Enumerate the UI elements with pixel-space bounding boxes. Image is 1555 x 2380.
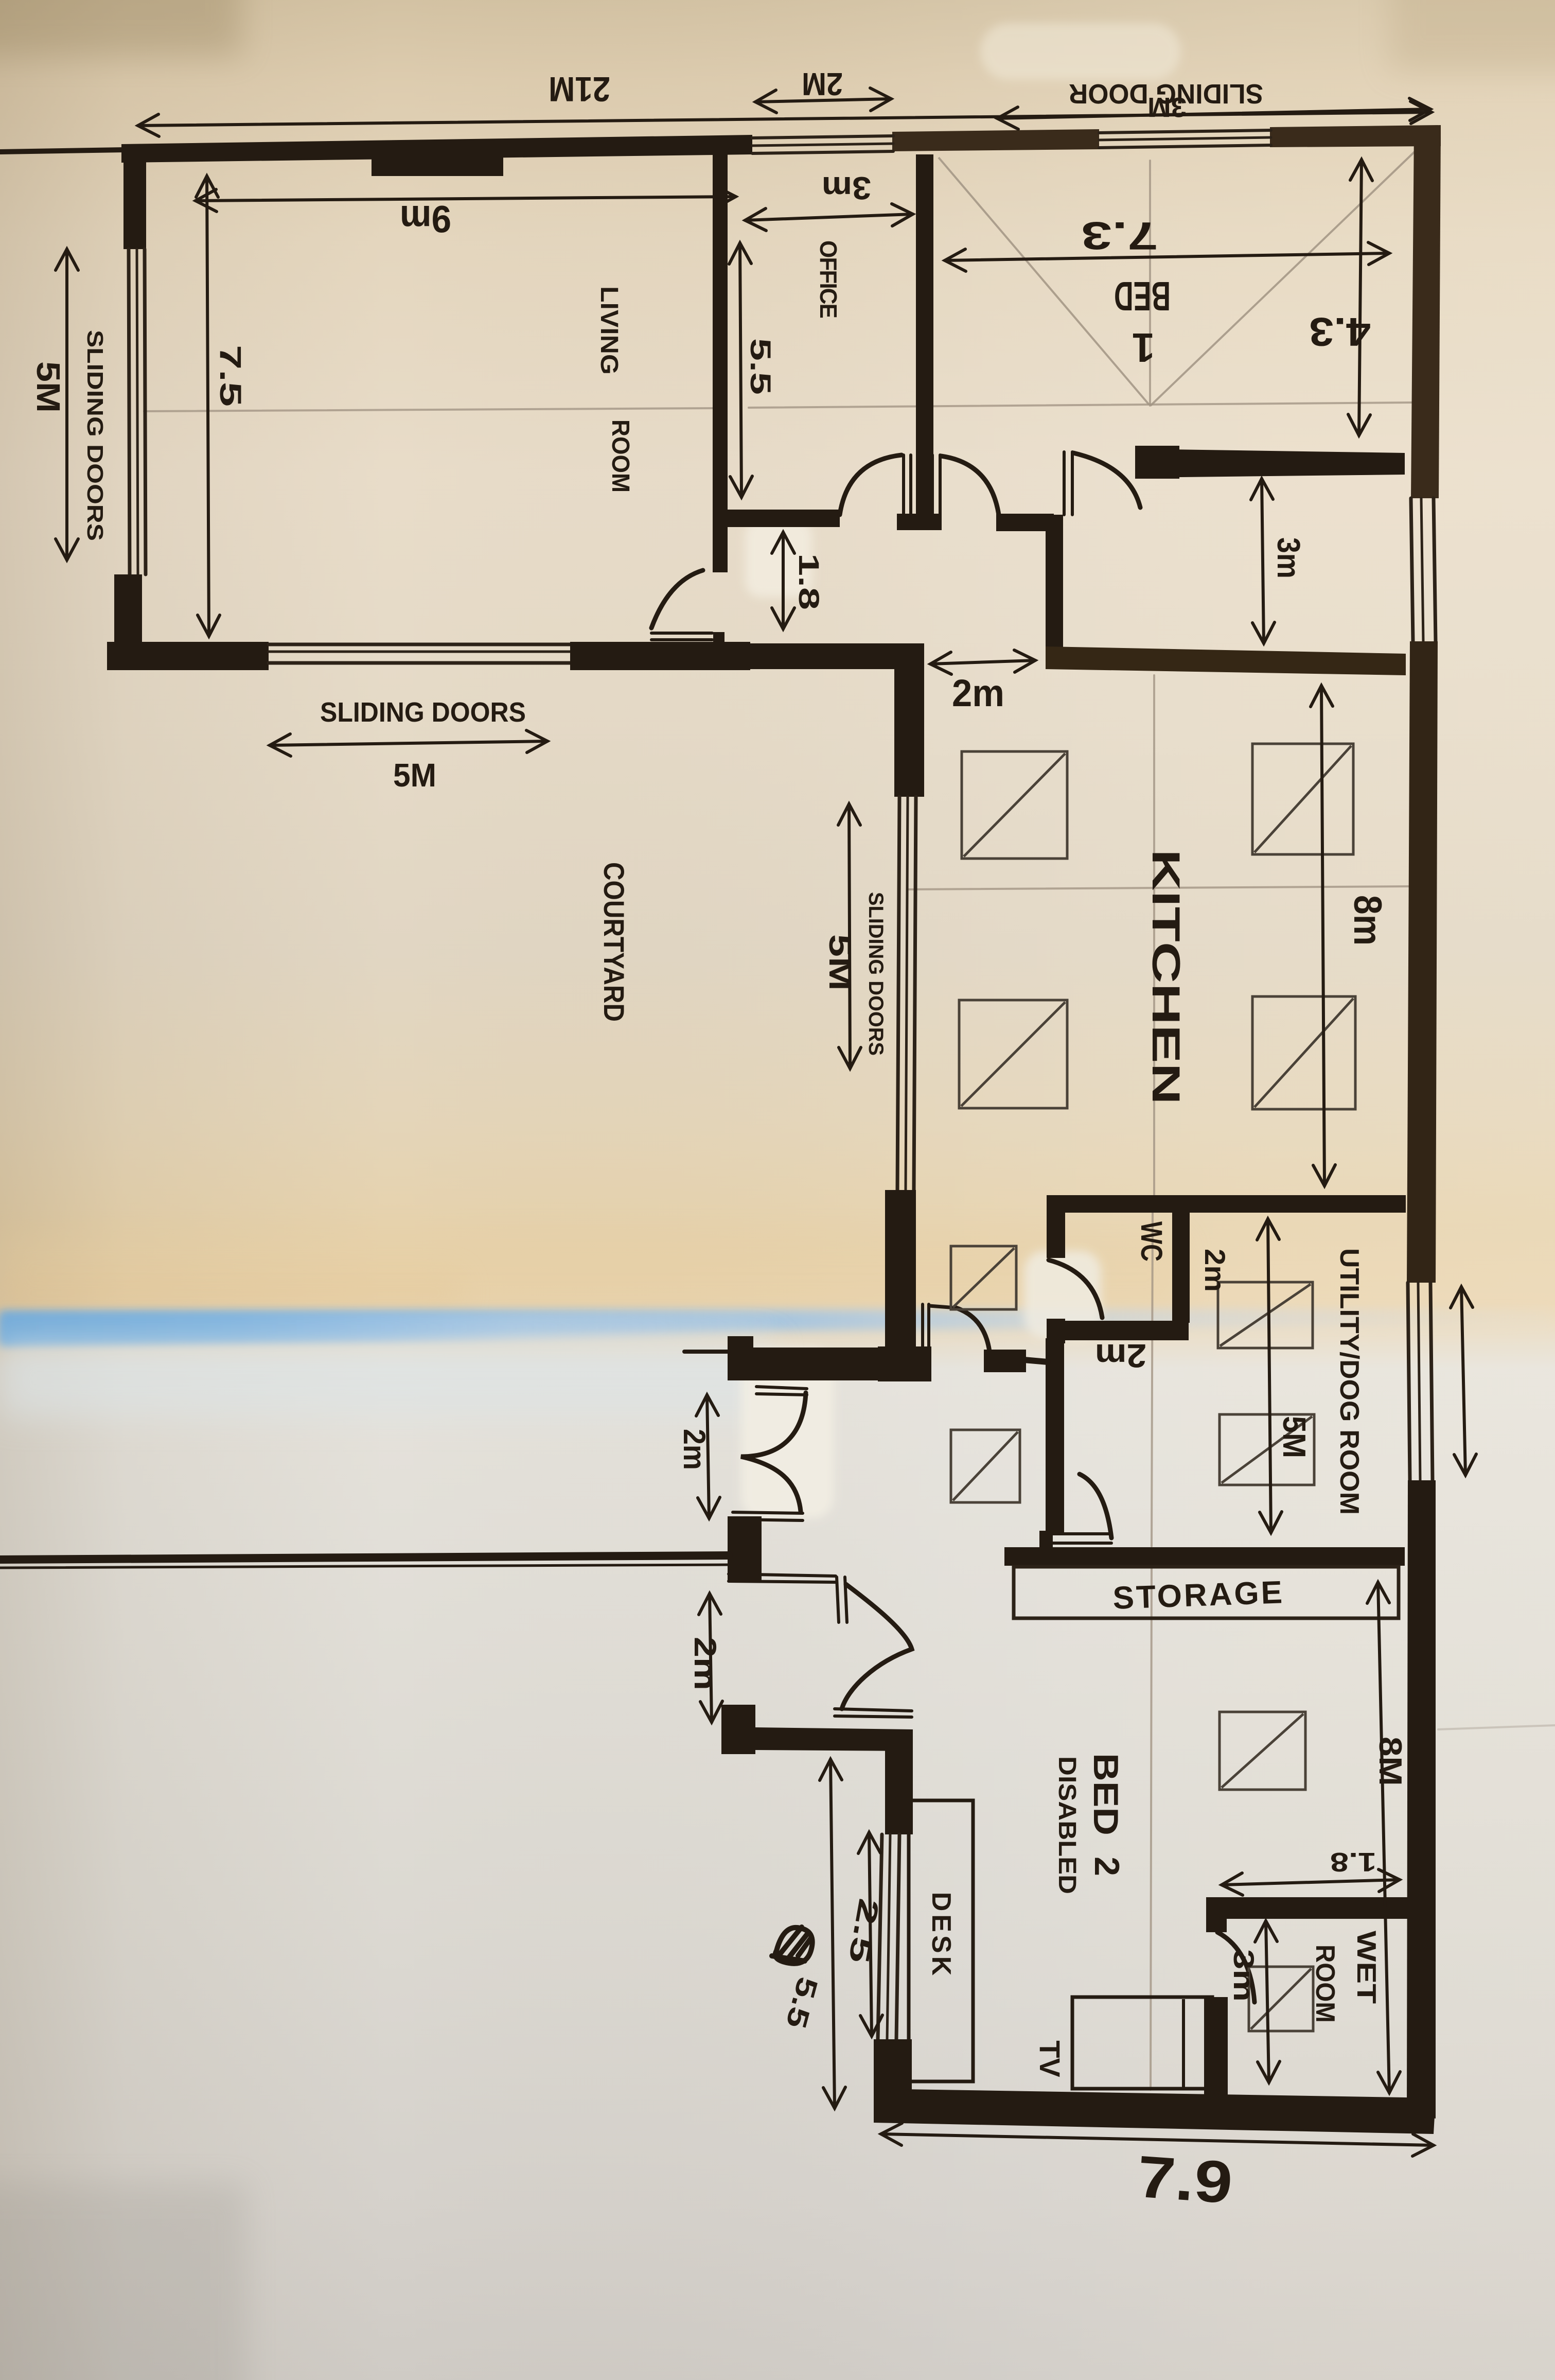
svg-text:ROOM: ROOM bbox=[607, 419, 634, 493]
svg-text:3M: 3M bbox=[1147, 92, 1187, 122]
svg-text:5M: 5M bbox=[823, 934, 857, 991]
svg-text:7.5: 7.5 bbox=[214, 345, 247, 407]
svg-text:LIVING: LIVING bbox=[595, 286, 623, 375]
svg-text:1.8: 1.8 bbox=[793, 553, 825, 610]
svg-text:8M: 8M bbox=[1372, 1737, 1408, 1786]
svg-text:DISABLED: DISABLED bbox=[1053, 1756, 1081, 1894]
svg-text:3m: 3m bbox=[1228, 1949, 1260, 2002]
svg-text:OFFICE: OFFICE bbox=[815, 240, 842, 318]
svg-text:9m: 9m bbox=[400, 198, 451, 240]
svg-text:2m: 2m bbox=[1095, 1337, 1146, 1374]
svg-text:21M: 21M bbox=[549, 69, 610, 109]
svg-text:2m: 2m bbox=[1199, 1249, 1231, 1292]
svg-text:5.5: 5.5 bbox=[745, 338, 777, 395]
svg-text:7.3: 7.3 bbox=[1081, 214, 1158, 257]
svg-text:WC: WC bbox=[1135, 1221, 1168, 1262]
svg-text:1: 1 bbox=[1132, 325, 1155, 371]
svg-text:2: 2 bbox=[1087, 1857, 1126, 1876]
svg-text:BED: BED bbox=[1086, 1753, 1125, 1835]
svg-text:2m: 2m bbox=[688, 1637, 722, 1690]
svg-text:5M: 5M bbox=[1276, 1416, 1312, 1458]
svg-text:1.8: 1.8 bbox=[1330, 1847, 1376, 1877]
svg-text:STORAGE: STORAGE bbox=[1112, 1574, 1285, 1616]
svg-text:COURTYARD: COURTYARD bbox=[598, 862, 630, 1022]
svg-text:TV: TV bbox=[1034, 2040, 1066, 2077]
svg-text:5M: 5M bbox=[30, 361, 67, 413]
svg-text:2M: 2M bbox=[802, 66, 843, 101]
svg-text:5M: 5M bbox=[393, 757, 436, 794]
svg-text:3m: 3m bbox=[1270, 537, 1306, 579]
svg-text:2m: 2m bbox=[677, 1429, 712, 1470]
svg-text:2m: 2m bbox=[952, 672, 1004, 714]
svg-text:SLIDING DOORS: SLIDING DOORS bbox=[320, 697, 526, 728]
svg-text:4.3: 4.3 bbox=[1309, 309, 1371, 355]
svg-text:KITCHEN: KITCHEN bbox=[1144, 849, 1188, 1105]
svg-text:8m: 8m bbox=[1346, 895, 1389, 946]
svg-text:ROOM: ROOM bbox=[1310, 1945, 1340, 2023]
svg-text:UTILITY/DOG ROOM: UTILITY/DOG ROOM bbox=[1334, 1248, 1364, 1515]
svg-text:SLIDING DOORS: SLIDING DOORS bbox=[864, 892, 887, 1056]
svg-text:BED: BED bbox=[1114, 273, 1171, 319]
svg-text:WET: WET bbox=[1351, 1931, 1381, 2004]
svg-text:DESK: DESK bbox=[926, 1892, 956, 1979]
svg-text:7.9: 7.9 bbox=[1135, 2144, 1234, 2216]
svg-text:SLIDING DOORS: SLIDING DOORS bbox=[82, 330, 108, 541]
svg-text:3m: 3m bbox=[822, 170, 871, 205]
